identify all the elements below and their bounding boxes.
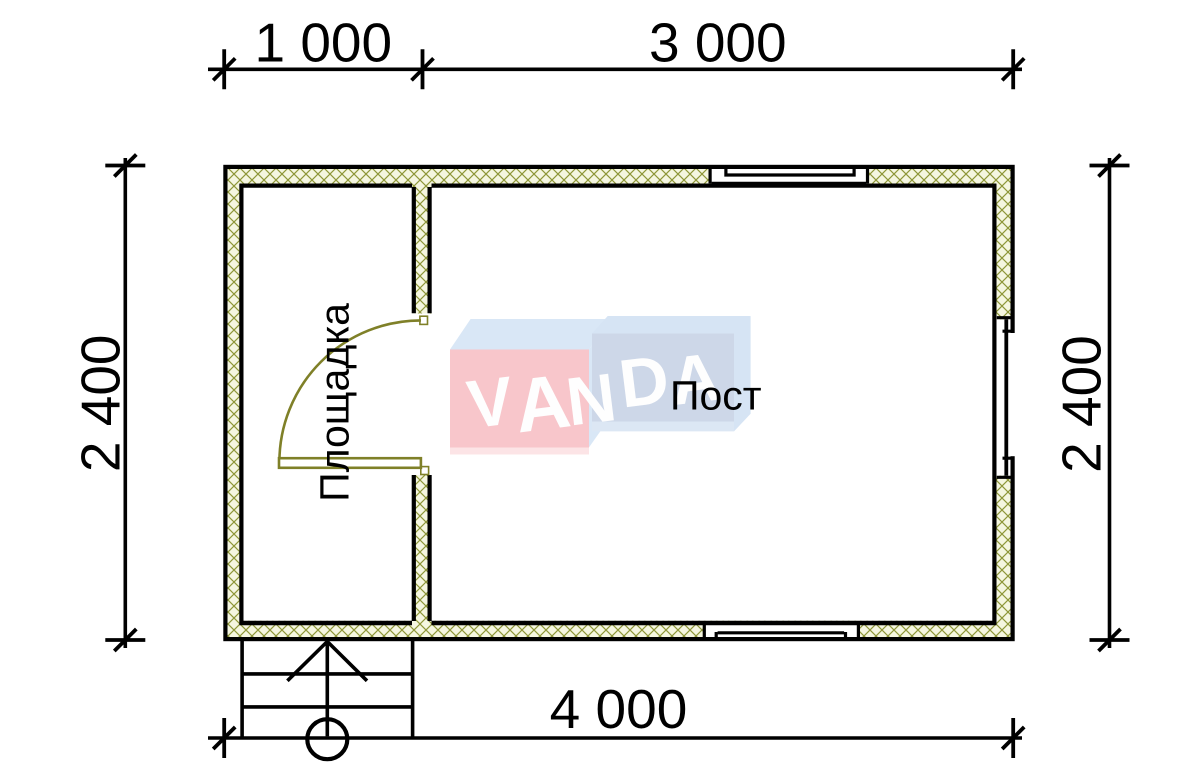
svg-text:1 000: 1 000	[254, 12, 392, 74]
svg-text:3 000: 3 000	[649, 12, 787, 74]
svg-text:4 000: 4 000	[550, 678, 688, 740]
svg-text:N: N	[562, 359, 620, 440]
svg-text:D: D	[615, 341, 673, 422]
svg-text:2 400: 2 400	[1051, 335, 1113, 473]
svg-text:V: V	[463, 362, 517, 443]
svg-text:Площадка: Площадка	[312, 303, 358, 502]
svg-text:2 400: 2 400	[70, 334, 132, 472]
svg-text:Пост: Пост	[670, 373, 762, 419]
